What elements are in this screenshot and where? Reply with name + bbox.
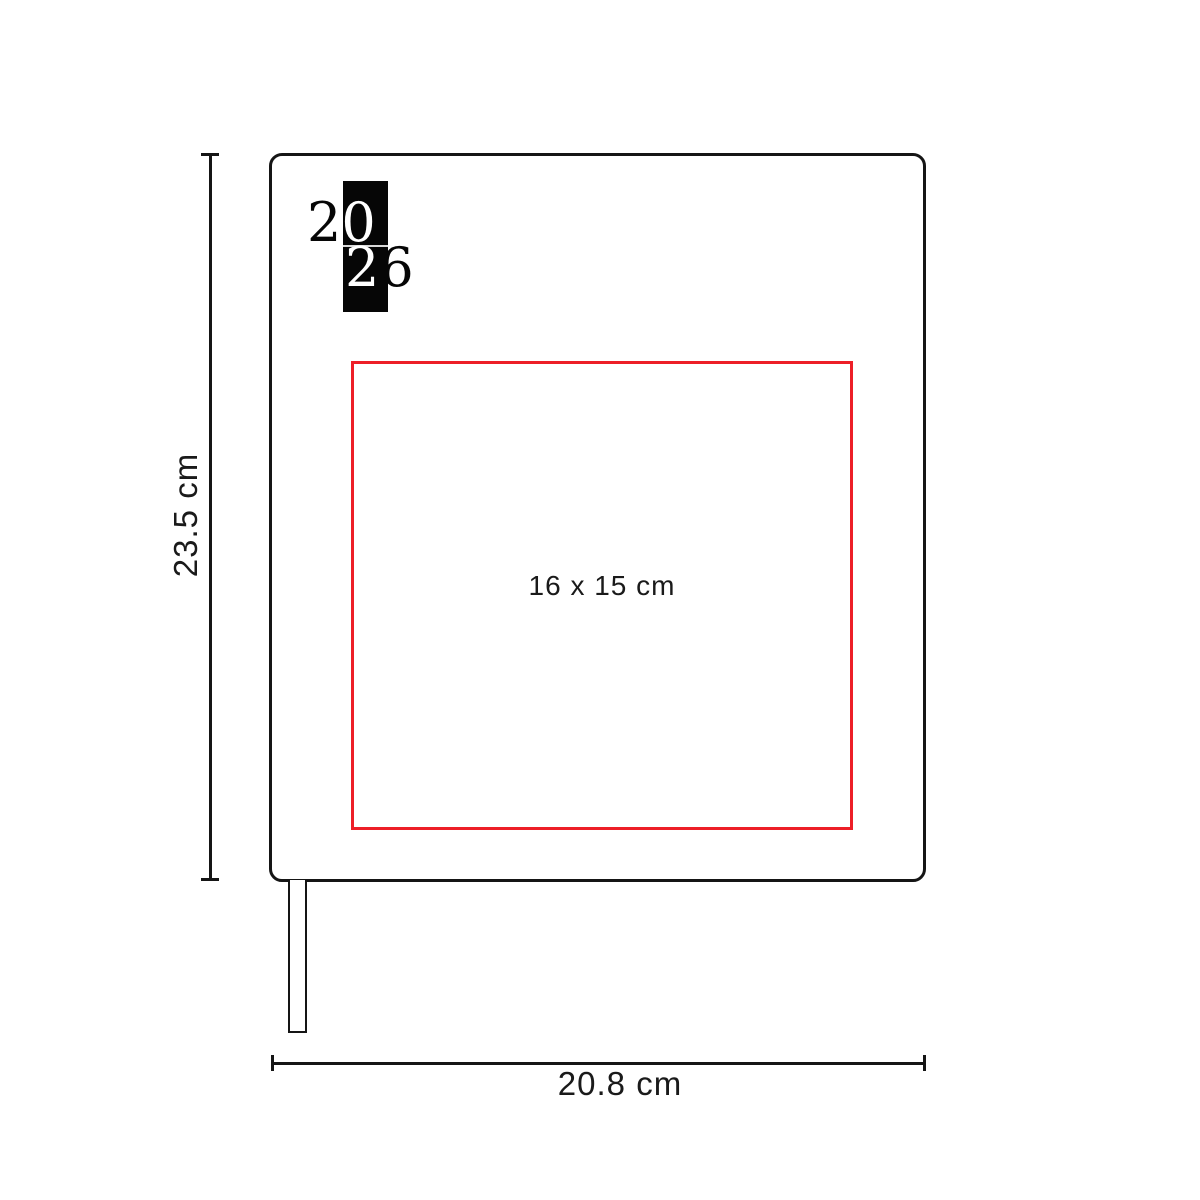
year-logo-row2: 26 [345,241,414,295]
bookmark-ribbon [288,880,307,1033]
height-dimension-shaft [209,153,212,881]
width-dimension-right-tick [923,1055,926,1071]
print-area-label: 16 x 15 cm [529,570,676,602]
height-dimension-bottom-tick [201,878,219,881]
year-digit-2-bottom: 2 [345,236,379,299]
height-dimension-label: 23.5 cm [167,453,205,577]
print-area-box: 16 x 15 cm [351,361,853,830]
width-dimension-label: 20.8 cm [558,1065,682,1103]
year-digit-2-top: 2 [307,191,341,254]
year-digit-6-bottom: 6 [379,236,413,299]
product-dimension-diagram: 23.5 cm 20 26 16 x 15 cm 20.8 cm [0,0,1200,1200]
